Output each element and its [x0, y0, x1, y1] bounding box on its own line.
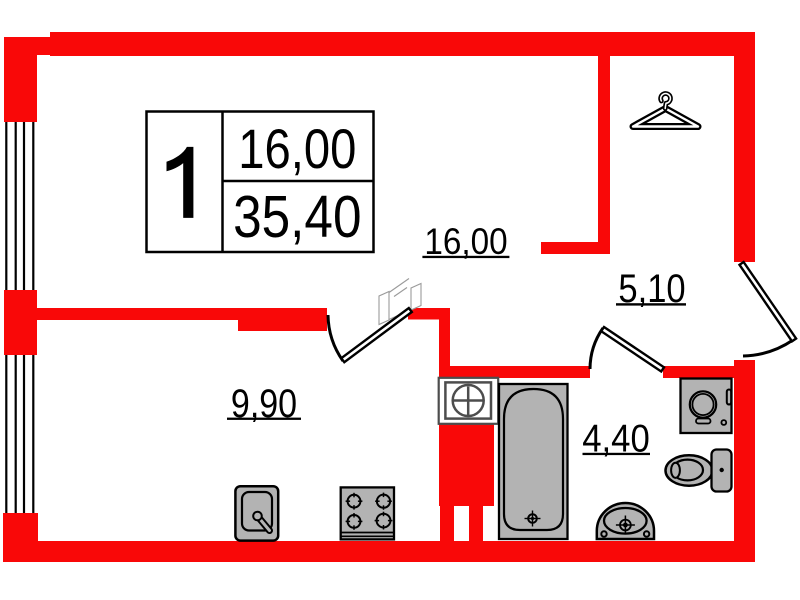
svg-text:35,40: 35,40: [233, 184, 361, 250]
svg-text:16,00: 16,00: [238, 117, 356, 180]
